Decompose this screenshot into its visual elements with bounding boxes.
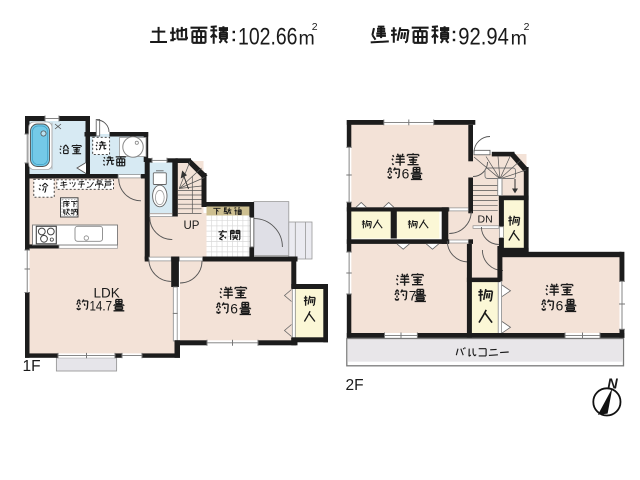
svg-text:2: 2 [524, 21, 530, 33]
svg-text:N: N [607, 377, 618, 393]
svg-text:UP: UP [184, 220, 200, 232]
svg-text:1F: 1F [23, 358, 41, 375]
svg-text:102.66: 102.66 [238, 24, 298, 51]
svg-text:DN: DN [478, 214, 493, 226]
svg-text:92.94: 92.94 [458, 24, 509, 51]
svg-text:2: 2 [312, 21, 318, 33]
svg-text:14.7: 14.7 [90, 298, 113, 313]
svg-text:2F: 2F [346, 377, 364, 394]
svg-text:6: 6 [230, 302, 238, 317]
svg-text:6: 6 [402, 167, 410, 182]
svg-text:6: 6 [556, 299, 564, 314]
